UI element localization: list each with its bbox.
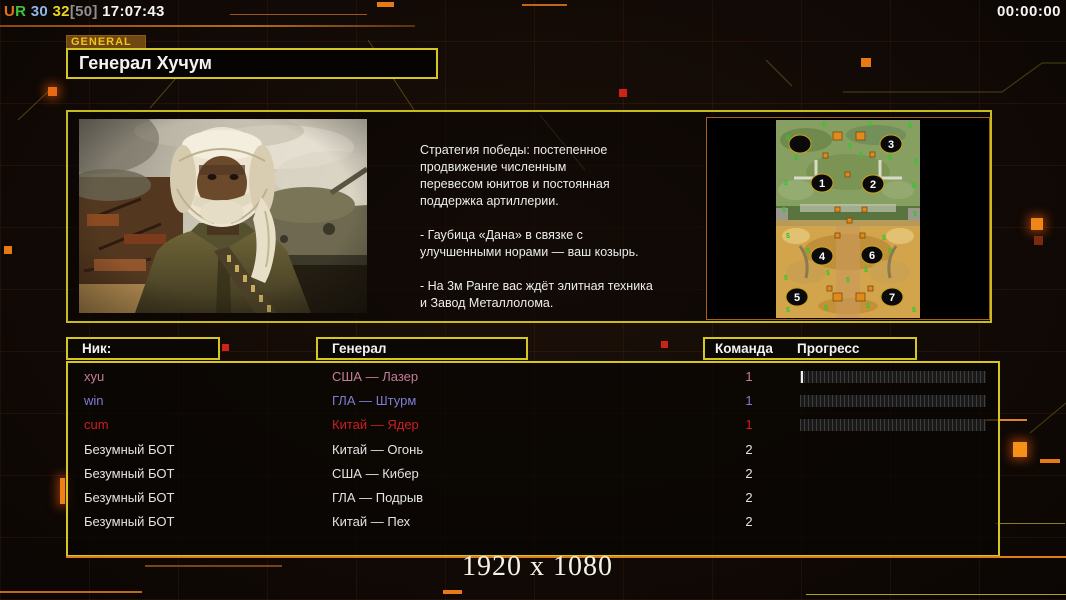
general-name: Генерал Хучум [79, 53, 212, 73]
topbar-underline [0, 25, 415, 27]
supply-pile-icon [847, 218, 852, 223]
player-row: xyuСША — Лазер1 [68, 365, 998, 389]
player-general: Китай — Огонь [332, 442, 423, 457]
header-nick-label: Ник: [82, 341, 111, 356]
player-nick: win [84, 393, 104, 408]
stats-part: 30 [26, 3, 48, 20]
loading-screen: UR 30 32[50] 17:07:43 00:00:00 GENERAL Г… [0, 0, 1066, 600]
resource-icon: $ [848, 143, 852, 150]
match-timer: 00:00:00 [997, 3, 1061, 20]
map-preview-panel: $$$$$$$$$$$$$$$$$$$$$$$$$3124657 [706, 117, 990, 320]
player-nick: Безумный БОТ [84, 514, 174, 529]
supply-pile-icon [856, 293, 865, 301]
supply-pile-icon [835, 207, 840, 212]
player-team: 2 [740, 442, 758, 457]
deco-square [4, 246, 12, 254]
header-general: Генерал [316, 337, 528, 360]
player-general: США — Лазер [332, 369, 418, 384]
strategy-paragraph: - На 3м Ранге вас ждёт элитная техника и… [420, 278, 710, 312]
resource-icon: $ [794, 155, 798, 162]
header-team-label: Команда [715, 341, 773, 356]
player-team: 1 [740, 393, 758, 408]
player-team: 1 [740, 417, 758, 432]
progress-bar [800, 395, 986, 407]
deco-square [222, 344, 229, 351]
deco-dash [995, 523, 1065, 524]
supply-pile-icon [823, 153, 828, 158]
stats-part: 17:07:43 [98, 3, 165, 20]
resource-icon: $ [824, 305, 828, 312]
deco-dash [230, 14, 367, 15]
player-row: Безумный БОТКитай — Пех2 [68, 510, 998, 534]
map-preview: $$$$$$$$$$$$$$$$$$$$$$$$$3124657 [776, 120, 920, 318]
player-nick: xyu [84, 369, 104, 384]
supply-pile-icon [833, 293, 842, 301]
stats-part: [50] [70, 3, 98, 20]
player-nick: Безумный БОТ [84, 466, 174, 481]
resource-icon: $ [888, 155, 892, 162]
player-team: 2 [740, 514, 758, 529]
resource-icon: $ [826, 270, 830, 277]
deco-dash [145, 565, 282, 567]
resource-icon: $ [882, 235, 886, 242]
deco-dash [806, 594, 1066, 595]
stats-part: 32 [48, 3, 70, 20]
start-position-number: 5 [794, 292, 800, 304]
deco-square [861, 58, 871, 67]
general-portrait [79, 119, 367, 313]
deco-dash [522, 4, 567, 6]
resource-icon: $ [846, 277, 850, 284]
player-general: ГЛА — Штурм [332, 393, 416, 408]
stats-part: R [15, 3, 26, 20]
player-team: 2 [740, 466, 758, 481]
resource-icon: $ [913, 211, 917, 218]
resource-icon: $ [912, 183, 916, 190]
deco-square [1031, 218, 1043, 230]
player-nick: Безумный БОТ [84, 490, 174, 505]
resource-icon: $ [784, 275, 788, 282]
supply-pile-icon [862, 207, 867, 212]
start-position-number: 3 [888, 139, 894, 151]
player-general: Китай — Ядер [332, 417, 419, 432]
header-nick: Ник: [66, 337, 220, 360]
deco-dash [0, 591, 142, 593]
player-team: 1 [740, 369, 758, 384]
header-team-progress: Команда Прогресс [703, 337, 917, 360]
supply-pile-icon [845, 172, 850, 177]
resource-icon: $ [864, 267, 868, 274]
player-nick: cum [84, 417, 109, 432]
deco-square [1013, 442, 1027, 457]
strategy-paragraph: Стратегия победы: постепенное продвижени… [420, 142, 710, 210]
resource-icon: $ [888, 248, 892, 255]
supply-pile-icon [856, 132, 865, 140]
player-team: 2 [740, 490, 758, 505]
player-row: Безумный БОТГЛА — Подрыв2 [68, 486, 998, 510]
player-stats-readout: UR 30 32[50] 17:07:43 [4, 3, 165, 20]
player-row: Безумный БОТКитай — Огонь2 [68, 438, 998, 462]
general-name-box: Генерал Хучум [66, 48, 438, 79]
resource-icon: $ [908, 123, 912, 130]
deco-dash [1040, 459, 1060, 463]
deco-square [619, 89, 627, 97]
player-row: winГЛА — Штурм1 [68, 389, 998, 413]
players-table: xyuСША — Лазер1winГЛА — Штурм1cumКитай —… [66, 361, 1000, 557]
resource-icon: $ [782, 207, 786, 214]
supply-pile-icon [860, 233, 865, 238]
supply-pile-icon [870, 152, 875, 157]
resource-icon: $ [784, 180, 788, 187]
player-general: ГЛА — Подрыв [332, 490, 423, 505]
deco-square [48, 87, 57, 96]
deco-square [60, 478, 65, 504]
start-position-number: 4 [819, 251, 826, 263]
progress-indicator [801, 371, 803, 383]
start-position-number: 1 [819, 178, 825, 190]
player-row: Безумный БОТСША — Кибер2 [68, 462, 998, 486]
resource-icon: $ [786, 233, 790, 240]
resource-icon: $ [822, 122, 826, 129]
supply-pile-icon [868, 286, 873, 291]
player-general: Китай — Пех [332, 514, 410, 529]
resource-icon: $ [912, 307, 916, 314]
start-position-number: 2 [870, 179, 876, 191]
player-row: cumКитай — Ядер1 [68, 413, 998, 437]
strategy-text: Стратегия победы: постепенное продвижени… [420, 142, 710, 329]
header-progress-label: Прогресс [797, 339, 859, 358]
progress-bar [800, 371, 986, 383]
deco-square [1034, 236, 1043, 245]
progress-bar [800, 419, 986, 431]
resource-icon: $ [859, 152, 863, 159]
start-position-number: 6 [869, 250, 875, 262]
resource-icon: $ [806, 248, 810, 255]
start-position-number: 7 [889, 292, 895, 304]
deco-square [661, 341, 668, 348]
supply-pile-icon [835, 233, 840, 238]
resolution-label: 1920 x 1080 [462, 551, 613, 583]
player-general: США — Кибер [332, 466, 419, 481]
header-general-label: Генерал [332, 341, 386, 356]
resource-icon: $ [786, 307, 790, 314]
supply-pile-icon [827, 286, 832, 291]
supply-pile-icon [833, 132, 842, 140]
deco-dash [377, 2, 394, 7]
general-info-panel: Стратегия победы: постепенное продвижени… [66, 110, 992, 323]
resource-icon: $ [868, 121, 872, 128]
resource-icon: $ [866, 303, 870, 310]
resource-icon: $ [914, 159, 918, 166]
strategy-paragraph: - Гаубица «Дана» в связке с улучшенными … [420, 227, 710, 261]
deco-dash [443, 590, 462, 594]
start-position-marker [789, 135, 811, 153]
player-nick: Безумный БОТ [84, 442, 174, 457]
stats-part: U [4, 3, 15, 20]
general-portrait-image [79, 119, 367, 313]
